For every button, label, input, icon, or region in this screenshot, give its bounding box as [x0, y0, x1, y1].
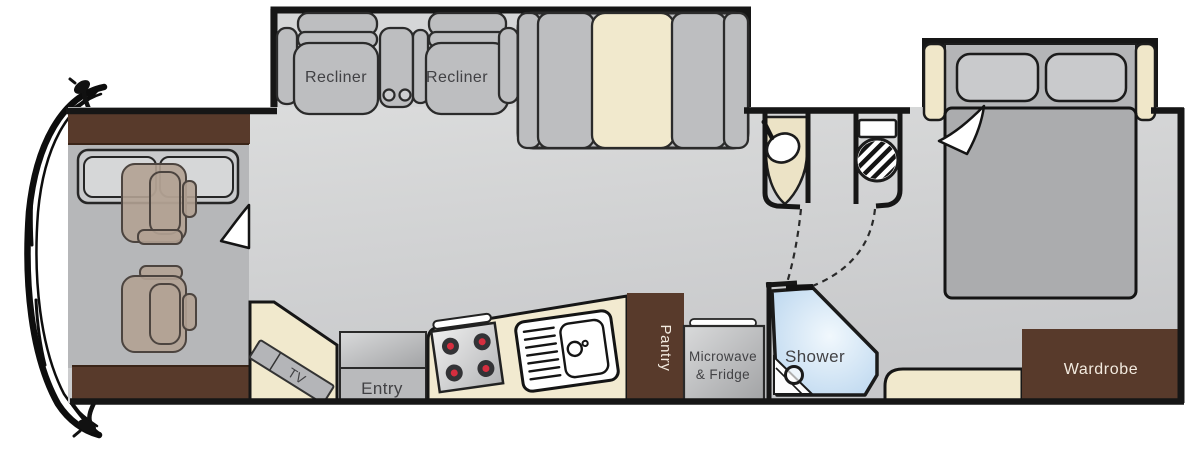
cab-rear-panel: [72, 366, 249, 402]
sprayer-icon: [582, 340, 588, 346]
rv-floorplan-canvas: TV: [0, 0, 1200, 450]
faucet-icon: [762, 120, 767, 125]
sofa: [518, 13, 748, 148]
sofa-center-cushion: [592, 13, 674, 148]
rv-floorplan: TV: [0, 0, 1200, 450]
faucet-icon: [567, 341, 583, 357]
pillow: [1046, 54, 1126, 101]
recliner-left-label: Recliner: [305, 69, 367, 86]
cup-holder-icon: [384, 90, 395, 101]
bedroom-bench: [885, 369, 1022, 401]
cab-seat-driver: [122, 164, 196, 244]
shower-door-track: [786, 287, 813, 288]
recliner-right-label: Recliner: [426, 69, 488, 86]
pantry-label: Pantry: [657, 325, 674, 372]
shower-wall: [766, 283, 797, 285]
nightstand-left: [924, 44, 945, 120]
recliner-left: [277, 13, 378, 114]
wardrobe-label: Wardrobe: [1064, 361, 1138, 378]
entry-label: Entry: [361, 379, 403, 398]
pillow: [957, 54, 1038, 101]
bed: [924, 44, 1155, 298]
stove: [430, 313, 503, 392]
microwave-fridge-label-line1: Microwave: [689, 349, 757, 364]
shower-label: Shower: [785, 347, 845, 366]
dashboard-panel: [68, 110, 250, 144]
kitchen-sink: [515, 310, 620, 393]
cup-holder-console: [380, 28, 413, 107]
shower-drain-icon: [786, 367, 803, 384]
cup-holder-icon: [400, 90, 411, 101]
cab-area: [68, 110, 250, 402]
toilet-tank: [859, 120, 896, 137]
pantry-cabinet: [627, 293, 684, 401]
recliner-right: [413, 13, 518, 114]
microwave-fridge-label-line2: & Fridge: [696, 367, 750, 382]
